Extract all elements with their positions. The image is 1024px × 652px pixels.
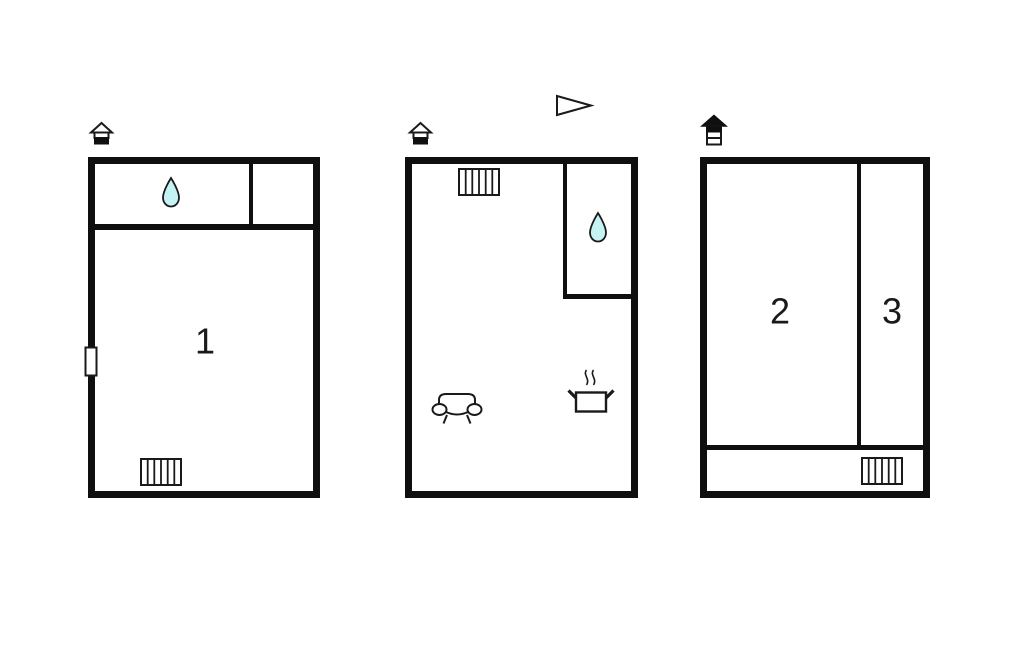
floor-plan-canvas: 1 — [0, 0, 1024, 652]
window-marker — [86, 348, 97, 376]
floor-plan-figure: 1 — [0, 0, 1024, 652]
direction-arrow-icon — [557, 96, 591, 115]
radiator-icon — [141, 459, 181, 485]
house-icon — [410, 123, 431, 144]
plan-unit-middle — [409, 96, 635, 495]
house-icon — [91, 123, 112, 144]
plan-unit-right: 2 3 — [702, 116, 927, 495]
room-number-3: 3 — [882, 291, 902, 332]
outer-wall — [409, 161, 635, 495]
radiator-icon — [862, 458, 902, 484]
room-number-1: 1 — [195, 321, 215, 362]
multi-storey-house-icon — [702, 116, 726, 145]
room-number-2: 2 — [770, 291, 790, 332]
radiator-icon — [459, 169, 499, 195]
plan-unit-left: 1 — [86, 123, 317, 495]
